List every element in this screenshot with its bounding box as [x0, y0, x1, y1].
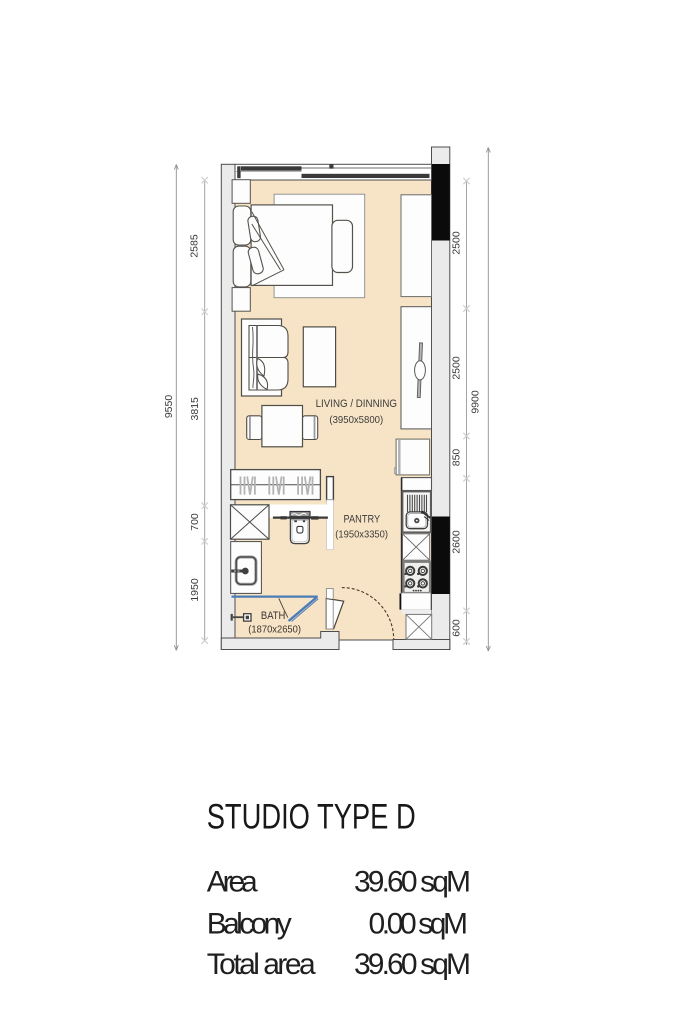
svg-text:39.60 sqM: 39.60 sqM	[354, 948, 471, 981]
svg-text:3815: 3815	[189, 397, 201, 421]
svg-text:LIVING / DINNING: LIVING / DINNING	[316, 398, 397, 410]
svg-text:2500: 2500	[451, 356, 463, 380]
svg-text:600: 600	[451, 619, 463, 637]
svg-text:700: 700	[189, 513, 201, 531]
svg-text:2600: 2600	[451, 530, 463, 554]
svg-text:1950: 1950	[189, 578, 201, 602]
svg-text:(3950x5800): (3950x5800)	[329, 414, 383, 426]
svg-text:9900: 9900	[470, 390, 482, 414]
svg-text:2585: 2585	[189, 234, 201, 258]
svg-text:PANTRY: PANTRY	[344, 513, 381, 525]
svg-text:9550: 9550	[163, 395, 175, 419]
svg-text:Total area: Total area	[207, 948, 316, 981]
svg-text:39.60 sqM: 39.60 sqM	[354, 866, 471, 899]
svg-text:Balcony: Balcony	[207, 907, 292, 940]
svg-text:(1870x2650): (1870x2650)	[248, 623, 301, 635]
svg-text:0.00 sqM: 0.00 sqM	[369, 907, 469, 940]
svg-text:2500: 2500	[451, 231, 463, 255]
svg-text:(1950x3350): (1950x3350)	[335, 528, 388, 540]
svg-text:BATH: BATH	[261, 610, 286, 622]
svg-text:850: 850	[451, 449, 463, 467]
svg-text:Area: Area	[207, 866, 258, 899]
svg-text:STUDIO TYPE D: STUDIO TYPE D	[207, 798, 416, 837]
